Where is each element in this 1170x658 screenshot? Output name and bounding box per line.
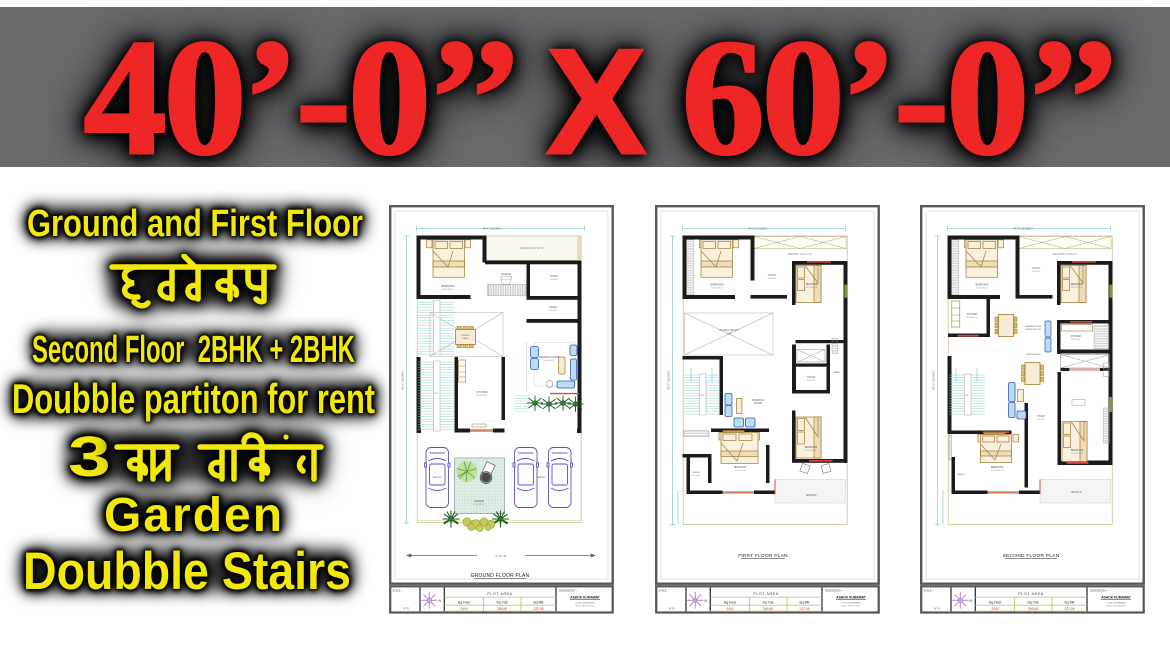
svg-text:Sq Feet: Sq Feet: [724, 600, 736, 604]
svg-text:222.96: 222.96: [533, 607, 543, 611]
svg-text:Sq Feet: Sq Feet: [989, 600, 1001, 604]
svg-text:Sq Feet: Sq Feet: [458, 600, 470, 604]
svg-text:MOB:- 98XXXXXXXX: MOB:- 98XXXXXXXX: [841, 606, 861, 608]
svg-text:11'-0"x12'-0": 11'-0"x12'-0": [806, 287, 818, 289]
svg-text:BEDROOM: BEDROOM: [991, 466, 1003, 469]
svg-text:7'-0"x5'-0": 7'-0"x5'-0": [807, 380, 816, 382]
svg-text:DRAWING CUM: DRAWING CUM: [1025, 325, 1041, 328]
svg-text:DINNING: DINNING: [461, 335, 470, 337]
svg-text:KITCHEN: KITCHEN: [967, 313, 978, 316]
svg-text:14'-0"x12'-0": 14'-0"x12'-0": [543, 360, 555, 362]
svg-text:BEDROOM: BEDROOM: [1071, 449, 1083, 452]
svg-text:8'-0"x7'-6": 8'-0"x7'-6": [1071, 339, 1081, 341]
svg-text:BEDROOM: BEDROOM: [442, 285, 455, 288]
svg-text:GROUND FLOOR PLAN: GROUND FLOOR PLAN: [471, 573, 530, 579]
svg-text:BEDROOM: BEDROOM: [1071, 283, 1083, 286]
svg-text:60'-0" (18.29MT): 60'-0" (18.29MT): [667, 370, 671, 389]
svg-text:2400: 2400: [460, 607, 468, 611]
svg-text:7'-6"x4'-0": 7'-6"x4'-0": [549, 279, 559, 281]
svg-text:TOILET: TOILET: [550, 275, 559, 278]
svg-text:Sq Yds: Sq Yds: [496, 600, 507, 604]
svg-text:BEDROOM: BEDROOM: [806, 283, 818, 286]
svg-text:Sq Yds: Sq Yds: [762, 600, 773, 604]
svg-text:DESIGNED BY :-: DESIGNED BY :-: [1090, 590, 1109, 593]
svg-text:N.T.S: N.T.S: [669, 608, 675, 611]
svg-text:12'-6"x10'-0": 12'-6"x10'-0": [711, 288, 723, 290]
svg-text:GARDEN: GARDEN: [474, 500, 485, 503]
svg-text:DESIGNED BY :-: DESIGNED BY :-: [559, 590, 578, 593]
svg-text:40'-0" (12.19MT): 40'-0" (12.19MT): [482, 227, 501, 231]
svg-text:ASHOK KUMAWAT: ASHOK KUMAWAT: [570, 596, 600, 600]
svg-text:DRESS: DRESS: [692, 472, 700, 474]
svg-text:SCALE :-: SCALE :-: [924, 590, 934, 593]
svg-text:11'-0"x12'-0": 11'-0"x12'-0": [805, 450, 817, 452]
svg-text:MANDIR: MANDIR: [501, 273, 511, 276]
svg-text:BALCONY 19'-0"x4'-0": BALCONY 19'-0"x4'-0": [1053, 253, 1077, 256]
svg-text:Sq Mtr: Sq Mtr: [533, 600, 544, 604]
svg-text:2400: 2400: [991, 607, 999, 611]
svg-text:BEDROOM: BEDROOM: [734, 466, 746, 469]
svg-text:12'-0"x11'-6": 12'-0"x11'-6": [991, 470, 1003, 472]
svg-text:BEDROOM: BEDROOM: [976, 284, 989, 287]
svg-text:N.T.S: N.T.S: [934, 608, 940, 611]
svg-text:LOBBY: LOBBY: [726, 333, 734, 335]
svg-text:ASHOK KUMAWAT: ASHOK KUMAWAT: [1101, 596, 1131, 600]
svg-text:60'-0" (18.29MT): 60'-0" (18.29MT): [932, 370, 936, 389]
svg-text:7'-6"x4'-0": 7'-6"x4'-0": [548, 310, 558, 312]
svg-text:PLOT AREA: PLOT AREA: [753, 592, 778, 596]
svg-text:12'-6"x10'-0": 12'-6"x10'-0": [442, 289, 454, 291]
svg-text:10'-0"x8'-0": 10'-0"x8'-0": [476, 395, 487, 397]
svg-text:MOB:- 98XXXXXXXX: MOB:- 98XXXXXXXX: [575, 606, 595, 608]
svg-text:PLOT AREA: PLOT AREA: [487, 592, 512, 596]
svg-text:UP: UP: [965, 395, 969, 397]
svg-text:(CIVIL ENGINEER): (CIVIL ENGINEER): [1107, 603, 1126, 605]
svg-text:40'-0" (12.19MT): 40'-0" (12.19MT): [1013, 227, 1032, 231]
svg-text:TOILET: TOILET: [1037, 416, 1046, 418]
svg-text:MOB:- 98XXXXXXXX: MOB:- 98XXXXXXXX: [1106, 606, 1126, 608]
svg-text:DESIGNED BY :-: DESIGNED BY :-: [825, 590, 844, 593]
svg-text:BALCONY 19'-0"x4'-0": BALCONY 19'-0"x4'-0": [788, 253, 812, 256]
svg-text:TOILET: TOILET: [549, 306, 558, 309]
svg-text:DINING ROOM: DINING ROOM: [1025, 329, 1040, 331]
svg-text:DRESS: DRESS: [957, 474, 965, 476]
svg-text:2400: 2400: [726, 607, 734, 611]
svg-text:7'-0"x5'-0": 7'-0"x5'-0": [1037, 419, 1046, 421]
svg-text:266.66: 266.66: [1028, 607, 1038, 611]
svg-text:7'-6"x4'-0": 7'-6"x4'-0": [767, 278, 777, 280]
svg-text:12'-0"x12'-0": 12'-0"x12'-0": [473, 504, 484, 506]
svg-text:TOILET: TOILET: [807, 377, 816, 379]
svg-text:SCALE :-: SCALE :-: [393, 590, 403, 593]
svg-text:12'-0"x11'-6": 12'-0"x11'-6": [734, 470, 746, 472]
svg-text:11'-0"x12'-0": 11'-0"x12'-0": [1071, 453, 1083, 455]
svg-text:AANGAN 19'-0"x12'-0": AANGAN 19'-0"x12'-0": [520, 247, 544, 250]
svg-text:SECOND FLOOR PLAN: SECOND FLOOR PLAN: [1003, 553, 1060, 559]
svg-text:ROOM: ROOM: [754, 402, 762, 405]
svg-text:6'-0"x4'-0": 6'-0"x4'-0": [692, 475, 701, 477]
svg-text:PLOT AREA: PLOT AREA: [1018, 592, 1043, 596]
svg-text:DOUBLE HEIGHT: DOUBLE HEIGHT: [719, 329, 739, 332]
svg-text:8'-0"x10'-0": 8'-0"x10'-0": [967, 317, 978, 319]
svg-text:Sq Mtr: Sq Mtr: [1064, 600, 1075, 604]
svg-text:UP: UP: [700, 395, 704, 397]
svg-text:TERRACE: TERRACE: [1071, 491, 1082, 494]
svg-text:TOILET: TOILET: [1032, 267, 1041, 270]
svg-text:SCALE :-: SCALE :-: [659, 590, 669, 593]
svg-text:(CIVIL ENGINEER): (CIVIL ENGINEER): [842, 603, 861, 605]
svg-text:KITCHEN: KITCHEN: [1071, 335, 1082, 338]
svg-text:7'-6"x4'-0": 7'-6"x4'-0": [1031, 271, 1041, 273]
svg-text:ASHOK KUMAWAT: ASHOK KUMAWAT: [836, 596, 866, 600]
svg-text:60'-0" (18.29MT): 60'-0" (18.29MT): [401, 370, 405, 389]
svg-text:222.96: 222.96: [799, 607, 809, 611]
svg-text:11'-0"x12'-0": 11'-0"x12'-0": [1071, 287, 1083, 289]
svg-text:LIVING ROOM: LIVING ROOM: [1026, 354, 1041, 356]
svg-text:TOILET: TOILET: [768, 274, 777, 277]
svg-text:KITCHEN: KITCHEN: [477, 391, 488, 394]
svg-text:Sq Yds: Sq Yds: [1027, 600, 1038, 604]
svg-text:N.T.S: N.T.S: [403, 608, 409, 611]
svg-text:PARKING: PARKING: [537, 476, 546, 479]
svg-text:40'-0" (12.19MT): 40'-0" (12.19MT): [748, 227, 767, 231]
svg-text:UP: UP: [434, 393, 438, 395]
svg-text:12'-6"x10'-0": 12'-6"x10'-0": [976, 288, 988, 290]
svg-text:5 10 15: 5 10 15: [496, 554, 507, 558]
svg-text:222.96: 222.96: [1064, 607, 1074, 611]
svg-text:BEDROOM: BEDROOM: [805, 446, 817, 449]
svg-text:266.66: 266.66: [763, 607, 773, 611]
svg-text:TERRACE: TERRACE: [806, 494, 817, 497]
svg-text:266.66: 266.66: [497, 607, 507, 611]
svg-text:FIRST FLOOR PLAN: FIRST FLOOR PLAN: [738, 553, 788, 559]
svg-text:Sq Mtr: Sq Mtr: [799, 600, 810, 604]
svg-text:WASH: WASH: [833, 371, 840, 374]
svg-text:(CIVIL ENGINEER): (CIVIL ENGINEER): [576, 603, 595, 605]
svg-text:DRAWING ROOM: DRAWING ROOM: [539, 356, 559, 359]
svg-text:PARKING: PARKING: [433, 476, 442, 479]
svg-text:BEDROOM: BEDROOM: [711, 284, 724, 287]
svg-text:TABLE: TABLE: [462, 337, 469, 340]
